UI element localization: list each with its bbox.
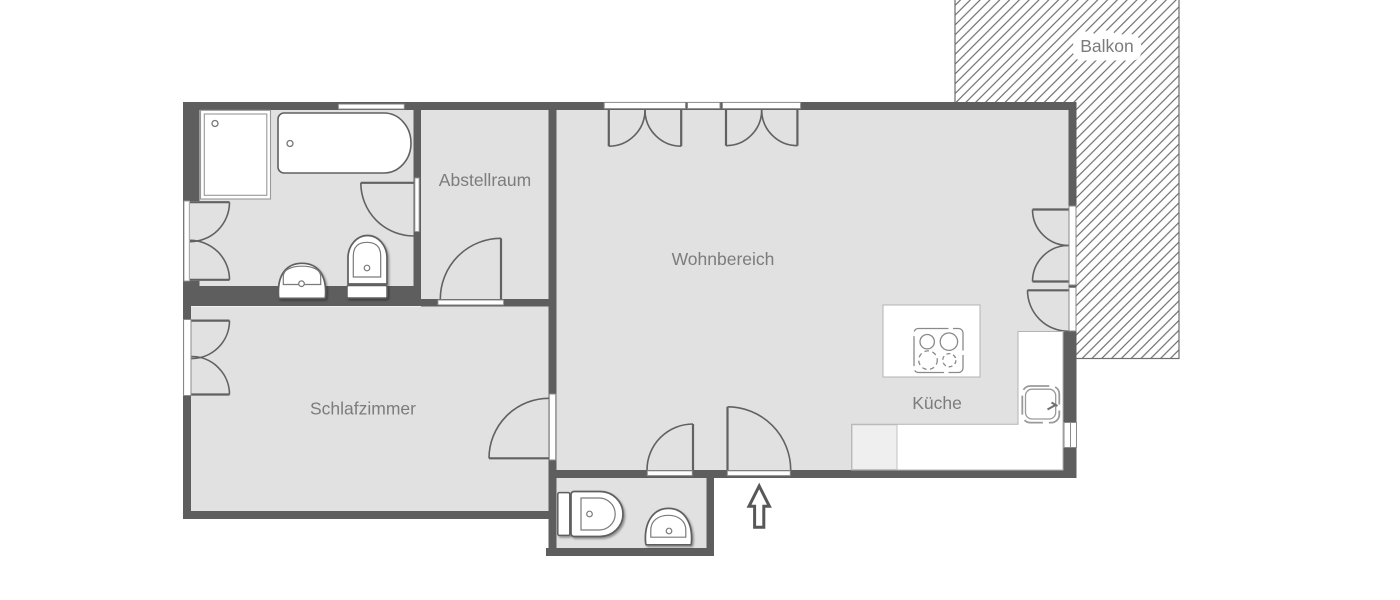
- svg-text:Küche: Küche: [912, 393, 962, 413]
- svg-text:Abstellraum: Abstellraum: [439, 170, 531, 190]
- svg-text:Balkon: Balkon: [1080, 36, 1134, 56]
- svg-text:Schlafzimmer: Schlafzimmer: [310, 399, 416, 419]
- svg-text:Wohnbereich: Wohnbereich: [672, 249, 775, 269]
